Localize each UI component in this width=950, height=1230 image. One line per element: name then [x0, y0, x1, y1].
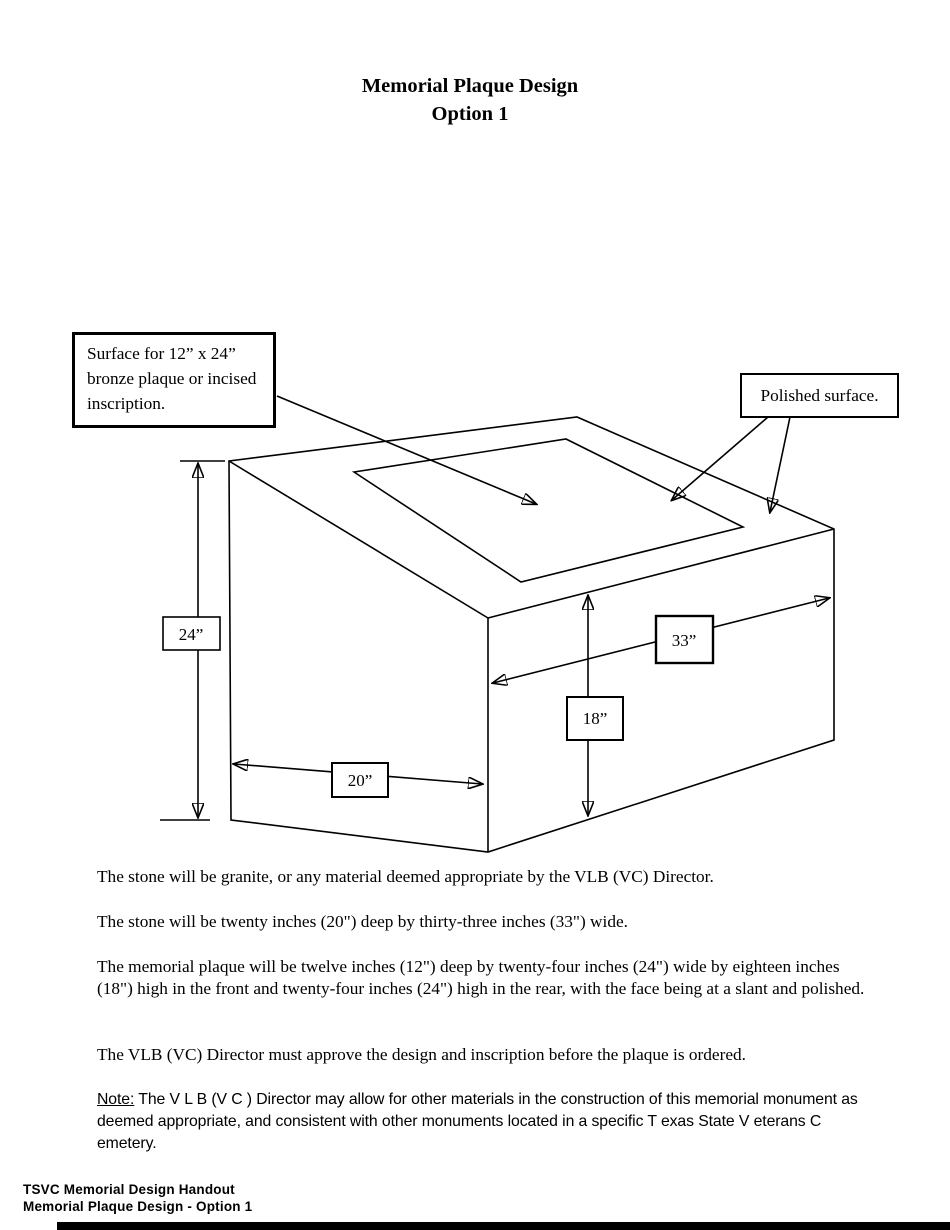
note-label: Note: [97, 1091, 134, 1108]
note-text: The V L B (V C ) Director may allow for … [97, 1091, 858, 1152]
paragraph-plaque-size: The memorial plaque will be twelve inche… [97, 956, 869, 1000]
footer-line-2: Memorial Plaque Design - Option 1 [23, 1198, 252, 1215]
callout-polished-surface: Polished surface. [740, 373, 899, 418]
paragraph-stone-material: The stone will be granite, or any materi… [97, 866, 869, 888]
paragraph-stone-size: The stone will be twenty inches (20") de… [97, 911, 869, 933]
dim-label-33: 33” [672, 631, 697, 650]
page-footer: TSVC Memorial Design Handout Memorial Pl… [23, 1181, 252, 1215]
dim-label-20: 20” [348, 771, 373, 790]
scan-artifact-bar [57, 1222, 950, 1230]
paragraph-director-approval: The VLB (VC) Director must approve the d… [97, 1044, 869, 1066]
callout-polished-surface-text: Polished surface. [760, 386, 878, 406]
document-page: { "title": { "line1": "Memorial Plaque D… [0, 0, 950, 1230]
callout-plaque-surface: Surface for 12” x 24” bronze plaque or i… [72, 332, 276, 428]
footer-line-1: TSVC Memorial Design Handout [23, 1181, 252, 1198]
dim-label-24: 24” [179, 625, 204, 644]
dim-label-18: 18” [583, 709, 608, 728]
stone-outline [229, 417, 834, 852]
note-paragraph: Note: The V L B (V C ) Director may allo… [97, 1089, 869, 1155]
dimension-rear-height-24: 24” [160, 461, 225, 820]
callout-plaque-surface-text: Surface for 12” x 24” bronze plaque or i… [87, 344, 256, 413]
